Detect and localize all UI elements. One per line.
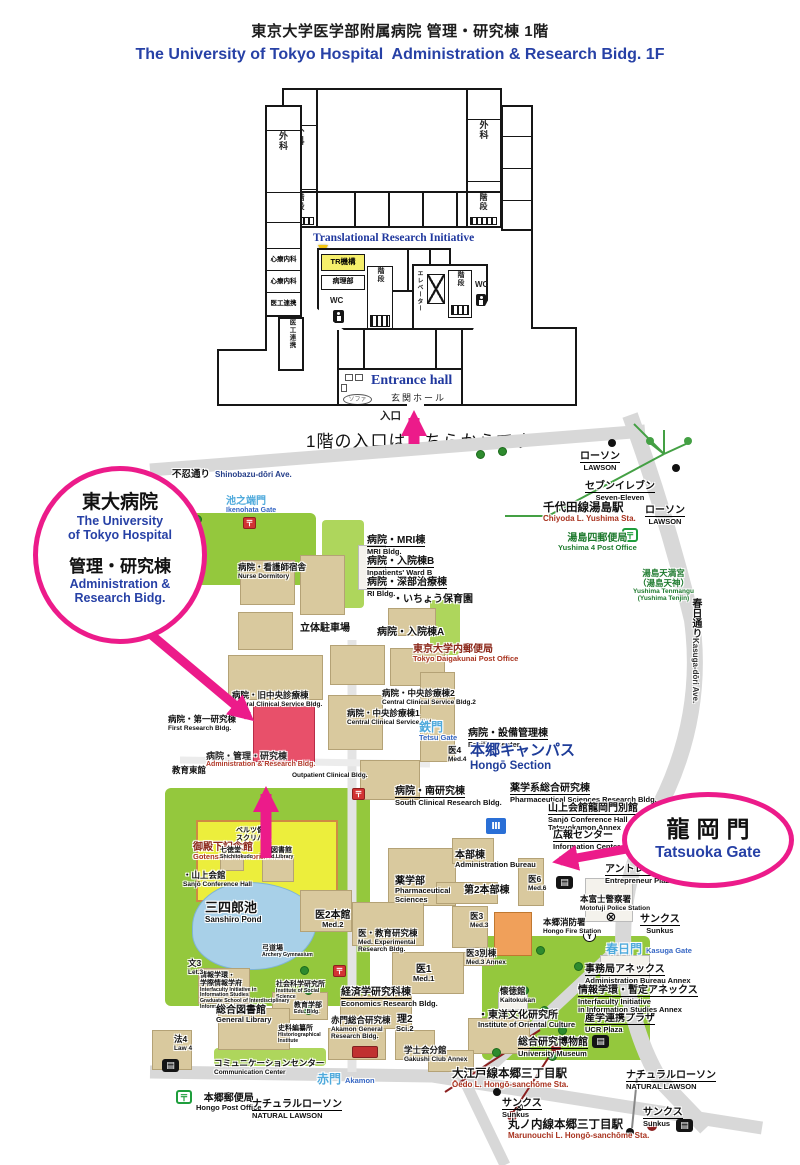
map-label: 弓道場Archery Gymnasium (262, 945, 313, 959)
map-label: 病院・中央診療棟2Central Clinical Service Bldg.2 (382, 689, 476, 706)
map-label: 千代田線湯島駅Chiyoda L. Yushima Sta. (543, 502, 636, 524)
map-label: 総合研究博物館University Museum (518, 1032, 588, 1058)
map-label: 丸ノ内線本郷三丁目駅Marunouchi L. Hongō-sanchōme S… (508, 1119, 649, 1141)
map-label: 医図書館Med.Library (264, 847, 293, 861)
map-label: サンクスSunkus (640, 909, 680, 935)
tree-icon (498, 447, 507, 456)
map-label: 七徳堂Shichitokudo (220, 847, 253, 861)
tree-icon (574, 962, 583, 971)
map-label: 湯島四郵便局Yushima 4 Post Office (558, 533, 637, 553)
map-label: 理2Sci.2 (396, 1014, 414, 1034)
map-label: 池之端門Ikenohata Gate (226, 496, 276, 515)
map-label: 鉄門Tetsu Gate (419, 721, 457, 743)
post-office-icon: 〒 (176, 1090, 192, 1104)
map-label: ナチュラルローソンNATURAL LAWSON (252, 1094, 342, 1120)
map-label: 春日門Kasuga Gate (606, 940, 696, 958)
tatsuoka-gate-annotation-oval: 龍岡門 Tatsuoka Gate (622, 792, 794, 888)
postbox-icon: 〒 (243, 517, 256, 529)
map-label: 病院・看護師宿舎Nurse Dormitory (238, 563, 306, 580)
building-shape (238, 612, 293, 650)
building-shape (330, 645, 385, 685)
map-label: 赤門総合研究棟Akamon General Research Bldg. (331, 1016, 391, 1040)
map-label: 教育東館 (172, 766, 206, 776)
hospital-annotation-circle: 東大病院 The University of Tokyo Hospital 管理… (33, 466, 207, 644)
map-label: 大江戸線本郷三丁目駅Ōedo L. Hongō-sanchōme Sta. (452, 1068, 568, 1090)
bus-stop-icon: ▤ (162, 1059, 179, 1072)
annotation-hospital-jp: 東大病院 (38, 487, 202, 514)
map-label: 病院・入院棟A (377, 627, 444, 638)
map-label: 医1Med.1 (413, 964, 434, 984)
annotation-gate-en: Tatsuoka Gate (627, 844, 789, 862)
map-label: 史料編纂所Historiographical Institute (278, 1025, 321, 1044)
map-label: ローソンLAWSON (645, 500, 685, 526)
map-label: 春日通りKasuga-dōri Ave. (686, 598, 704, 703)
map-label: 不忍通りShinobazu-dōri Ave. (172, 464, 297, 482)
bus-stop-icon: ▤ (556, 876, 573, 889)
map-label: 医・教育研究棟Med. Experimental Research Bldg. (358, 929, 418, 953)
map-label: サンクスSunkus (502, 1093, 542, 1119)
map-label: ベルツ像 スクリバ像 (236, 827, 271, 843)
annotation-hospital-en: The University of Tokyo Hospital (38, 514, 202, 543)
map-label: 医2本館Med.2 (315, 910, 351, 930)
tree-icon (492, 1048, 501, 1057)
map-label: 病院・管理・研究棟Administration & Research Bldg. (206, 751, 315, 769)
map-label: 病院・第一研究棟First Research Bldg. (168, 715, 236, 732)
map-label: 総合図書館General Library (216, 1005, 271, 1025)
map-label: 本部棟Administration Bureau (455, 850, 536, 870)
page: 東京大学医学部附属病院 管理・研究棟 1階 The University of … (0, 0, 800, 1165)
map-label: 懐徳館Kaitokukan (500, 987, 535, 1004)
map-label: 湯島天満宮 （湯島天神）Yushima Tenmangu (Yushima Te… (633, 569, 694, 603)
map-label: 病院・旧中央診療棟Central Clinical Service Bldg. (232, 691, 322, 708)
map-label: 法4Law 4 (174, 1035, 192, 1052)
tree-icon (476, 450, 485, 459)
map-label: 第2本部棟 (464, 885, 510, 896)
map-label: 医3Med.3 (470, 912, 488, 929)
map-label: 本郷消防署Hongo Fire Station (543, 918, 601, 935)
information-center-icon: Ⅲ (486, 818, 506, 834)
map-label: 赤門Akamon (317, 1070, 379, 1088)
tree-icon (300, 966, 309, 975)
bus-stop-icon: ▤ (592, 1035, 609, 1048)
map-label: 三四郎池Sanshiro Pond (205, 901, 261, 925)
map-label: ・いちょう保育園 (393, 594, 473, 605)
annotation-building-jp: 管理・研究棟 (38, 552, 202, 577)
map-label: 経済学研究科棟Economics Research Bldg. (341, 982, 438, 1008)
map-label: ローソンLAWSON (580, 446, 620, 472)
map-label: 立体駐車場 (300, 623, 350, 634)
annotation-building-en: Administration & Research Bidg. (38, 577, 202, 606)
police-station-icon: ⊗ (604, 910, 618, 924)
map-label: 学士会分館Gakushi Club Annex (404, 1046, 467, 1063)
map-label: 本郷キャンパスHongō Section (470, 743, 575, 773)
map-label: ナチュラルローソンNATURAL LAWSON (626, 1065, 716, 1091)
annotation-gate-jp: 龍岡門 (627, 810, 789, 844)
map-label: 病院・南研究棟South Clinical Research Bldg. (395, 781, 502, 807)
akamon-gate-shape (352, 1046, 378, 1058)
map-label: 薬学部Pharmaceutical Sciences (395, 876, 450, 904)
tree-icon (536, 946, 545, 955)
map-label: セブンイレブンSeven-Eleven (585, 476, 655, 502)
map-label: 情報学環・暫定アネックスInterfaculty Initiative in I… (578, 980, 698, 1015)
building-shape (300, 555, 345, 615)
postbox-icon: 〒 (333, 965, 346, 977)
map-label: 東京大学内郵便局Tokyo Daigakunai Post Office (413, 644, 518, 664)
map-label: ・山上会館Sanjō Conference Hall (183, 871, 252, 888)
map-label: サンクスSunkus (643, 1102, 683, 1128)
map-label: 医6Med.6 (528, 875, 546, 892)
map-label: 広報センターInformation Center (553, 825, 620, 851)
map-label: ・東洋文化研究所Institute of Oriental Culture (478, 1010, 575, 1030)
map-label: 文3Let.3 (188, 959, 203, 976)
map-label: 教育学部Edu. Bldg. (294, 1002, 322, 1016)
map-label: コミュニケーションセンターCommunication Center (214, 1059, 324, 1076)
map-label: 医4Med.4 (448, 746, 466, 763)
map-label: Outpatient Clinical Bldg. (292, 772, 367, 779)
postbox-icon: 〒 (352, 788, 365, 800)
map-label: 医3別棟Med.3 Annex (466, 949, 506, 966)
